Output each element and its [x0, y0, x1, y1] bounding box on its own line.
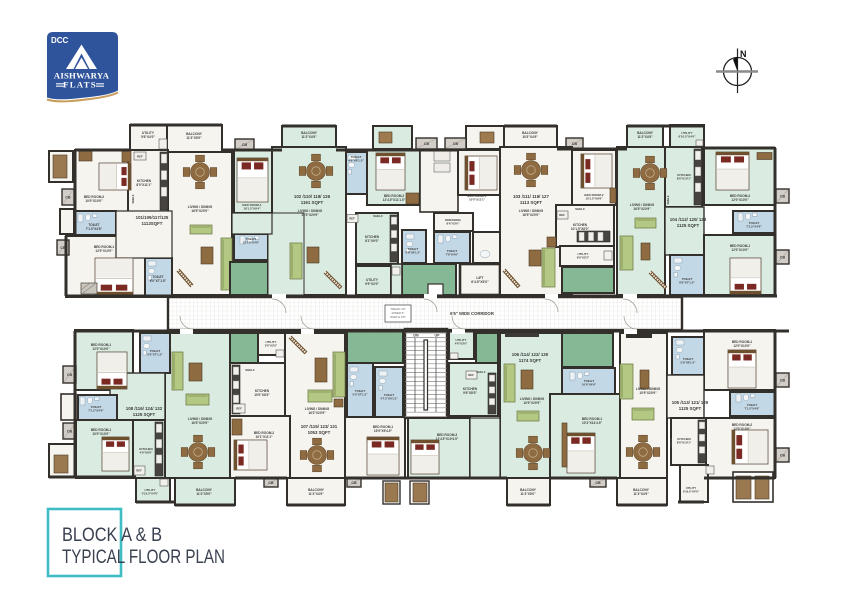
svg-text:REF: REF	[137, 155, 143, 159]
svg-text:BED ROOM-212'0"X10'0": BED ROOM-212'0"X10'0"	[732, 423, 753, 431]
svg-text:BED ROOM-110'0"X11'1": BED ROOM-110'0"X11'1"	[467, 194, 486, 202]
svg-text:BED ROOM-312'4.5"X10'4.5": BED ROOM-312'4.5"X10'4.5"	[436, 433, 459, 441]
svg-text:CB: CB	[572, 142, 578, 146]
svg-text:CB: CB	[453, 142, 459, 146]
svg-text:CB: CB	[351, 481, 357, 485]
svg-text:CB: CB	[67, 373, 73, 377]
svg-text:CB: CB	[67, 429, 73, 433]
svg-text:BED ROOM-112'0"X10'0": BED ROOM-112'0"X10'0"	[91, 343, 112, 351]
svg-text:KITCHEN8'6"X10'1": KITCHEN8'6"X10'1"	[677, 437, 692, 445]
svg-text:UTILITY3'6"X3'0": UTILITY3'6"X3'0"	[265, 340, 278, 348]
svg-text:SHELF: SHELF	[669, 438, 673, 447]
svg-text:BED ROOM-210'1"X11'1": BED ROOM-210'1"X11'1"	[254, 431, 275, 439]
svg-text:REF: REF	[559, 213, 565, 217]
svg-text:CB: CB	[780, 255, 786, 259]
svg-text:BED ROOM-210'0"X10'0": BED ROOM-210'0"X10'0"	[84, 195, 105, 203]
svg-text:BALCONY11'3"X5'0": BALCONY11'3"X5'0"	[186, 132, 203, 140]
svg-text:BALCONY11'3"X4'9": BALCONY11'3"X4'9"	[637, 131, 654, 139]
svg-text:BED ROOM-110'3"X14'4.5": BED ROOM-110'3"X14'4.5"	[582, 417, 603, 425]
svg-text:DN: DN	[413, 334, 419, 338]
svg-text:CB: CB	[780, 378, 786, 382]
svg-text:BED ROOM-116'1.5"X9'4": BED ROOM-116'1.5"X9'4"	[242, 203, 261, 211]
svg-text:KITCHEN9'6"X8'0": KITCHEN9'6"X8'0"	[463, 387, 478, 395]
svg-text:6'6" WIDE CORRIDOR: 6'6" WIDE CORRIDOR	[450, 311, 494, 316]
svg-text:SHELF: SHELF	[131, 194, 135, 203]
svg-text:BED ROOM-110'0"X10'0": BED ROOM-110'0"X10'0"	[91, 428, 112, 436]
svg-text:BLOCK A & B: BLOCK A & B	[62, 524, 162, 546]
svg-text:KITCHEN8'0"X11'1": KITCHEN8'0"X11'1"	[136, 179, 152, 187]
svg-text:BED ROOM-210'1.5"X9'6": BED ROOM-210'1.5"X9'6"	[584, 193, 603, 201]
svg-text:BED ROOM-112'0"X10'0": BED ROOM-112'0"X10'0"	[732, 340, 753, 348]
svg-text:BED ROOM-112'0"X10'0": BED ROOM-112'0"X10'0"	[94, 245, 115, 253]
svg-text:UTILITY9'9"X2'3": UTILITY9'9"X2'3"	[577, 252, 590, 260]
svg-text:REF: REF	[236, 407, 242, 411]
svg-text:WIDTH 3'9": WIDTH 3'9"	[390, 315, 406, 319]
svg-text:CB: CB	[242, 143, 248, 147]
svg-text:KITCHEN4'9"X9'0": KITCHEN4'9"X9'0"	[139, 447, 153, 455]
svg-text:REF: REF	[136, 469, 142, 473]
svg-text:CB: CB	[268, 481, 274, 485]
svg-text:CB: CB	[424, 142, 430, 146]
svg-text:CB: CB	[780, 453, 786, 457]
svg-text:KITCHEN10'0"X8'3": KITCHEN10'0"X8'3"	[254, 389, 270, 397]
svg-text:CB: CB	[780, 194, 786, 198]
svg-text:UTILITY5'6"X4'0": UTILITY5'6"X4'0"	[141, 131, 155, 139]
svg-text:CB: CB	[595, 481, 601, 485]
svg-text:SHELF: SHELF	[373, 214, 383, 218]
svg-text:BALCONY11'3"X4'9": BALCONY11'3"X4'9"	[308, 488, 325, 496]
svg-text:N: N	[740, 49, 747, 59]
svg-text:SHELF: SHELF	[666, 195, 670, 204]
svg-text:SHELF: SHELF	[575, 207, 585, 211]
svg-text:UTILITY9'9"X3'0": UTILITY9'9"X3'0"	[365, 278, 379, 286]
svg-text:KITCHEN10'1.5"X8'0": KITCHEN10'1.5"X8'0"	[571, 223, 590, 231]
svg-text:SHELF: SHELF	[245, 368, 255, 372]
svg-text:KITCHEN8'6"X10'1": KITCHEN8'6"X10'1"	[677, 173, 692, 181]
svg-text:TYPICAL FLOOR PLAN: TYPICAL FLOOR PLAN	[62, 546, 225, 568]
svg-text:FLATS: FLATS	[63, 80, 97, 90]
svg-text:SHELF: SHELF	[476, 370, 485, 374]
svg-text:KITCHEN8'1"X9'0": KITCHEN8'1"X9'0"	[365, 235, 380, 243]
svg-text:UP: UP	[435, 334, 441, 338]
svg-text:DRESSING8'6"X3'0": DRESSING8'6"X3'0"	[445, 218, 461, 226]
svg-text:BED ROOM-212'4.5"X11'1.5": BED ROOM-212'4.5"X11'1.5"	[383, 194, 406, 202]
svg-text:BALCONY11'3"X5'0": BALCONY11'3"X5'0"	[520, 488, 537, 496]
svg-text:DCC: DCC	[51, 36, 69, 45]
svg-text:BALCONY11'3"X4'9": BALCONY11'3"X4'9"	[301, 131, 318, 139]
svg-text:UTILITY4'6"X3'0": UTILITY4'6"X3'0"	[455, 338, 468, 346]
svg-text:TOILET7'6"X4'6": TOILET7'6"X4'6"	[446, 249, 459, 257]
svg-text:BED ROOM-115'9"X9'4.5": BED ROOM-115'9"X9'4.5"	[373, 425, 394, 433]
svg-text:BED ROOM-112'0"X10'0": BED ROOM-112'0"X10'0"	[730, 244, 751, 252]
svg-text:REF: REF	[349, 217, 355, 221]
svg-text:BALCONY10'3"X4'9": BALCONY10'3"X4'9"	[522, 131, 539, 139]
svg-text:BED ROOM-212'0"X10'0": BED ROOM-212'0"X10'0"	[730, 194, 751, 202]
svg-text:BALCONY11'3"X5'0": BALCONY11'3"X5'0"	[196, 488, 213, 496]
svg-text:BALCONY11'3"X4'9": BALCONY11'3"X4'9"	[633, 488, 650, 496]
svg-text:REF: REF	[468, 373, 474, 377]
svg-text:CB: CB	[65, 195, 71, 199]
